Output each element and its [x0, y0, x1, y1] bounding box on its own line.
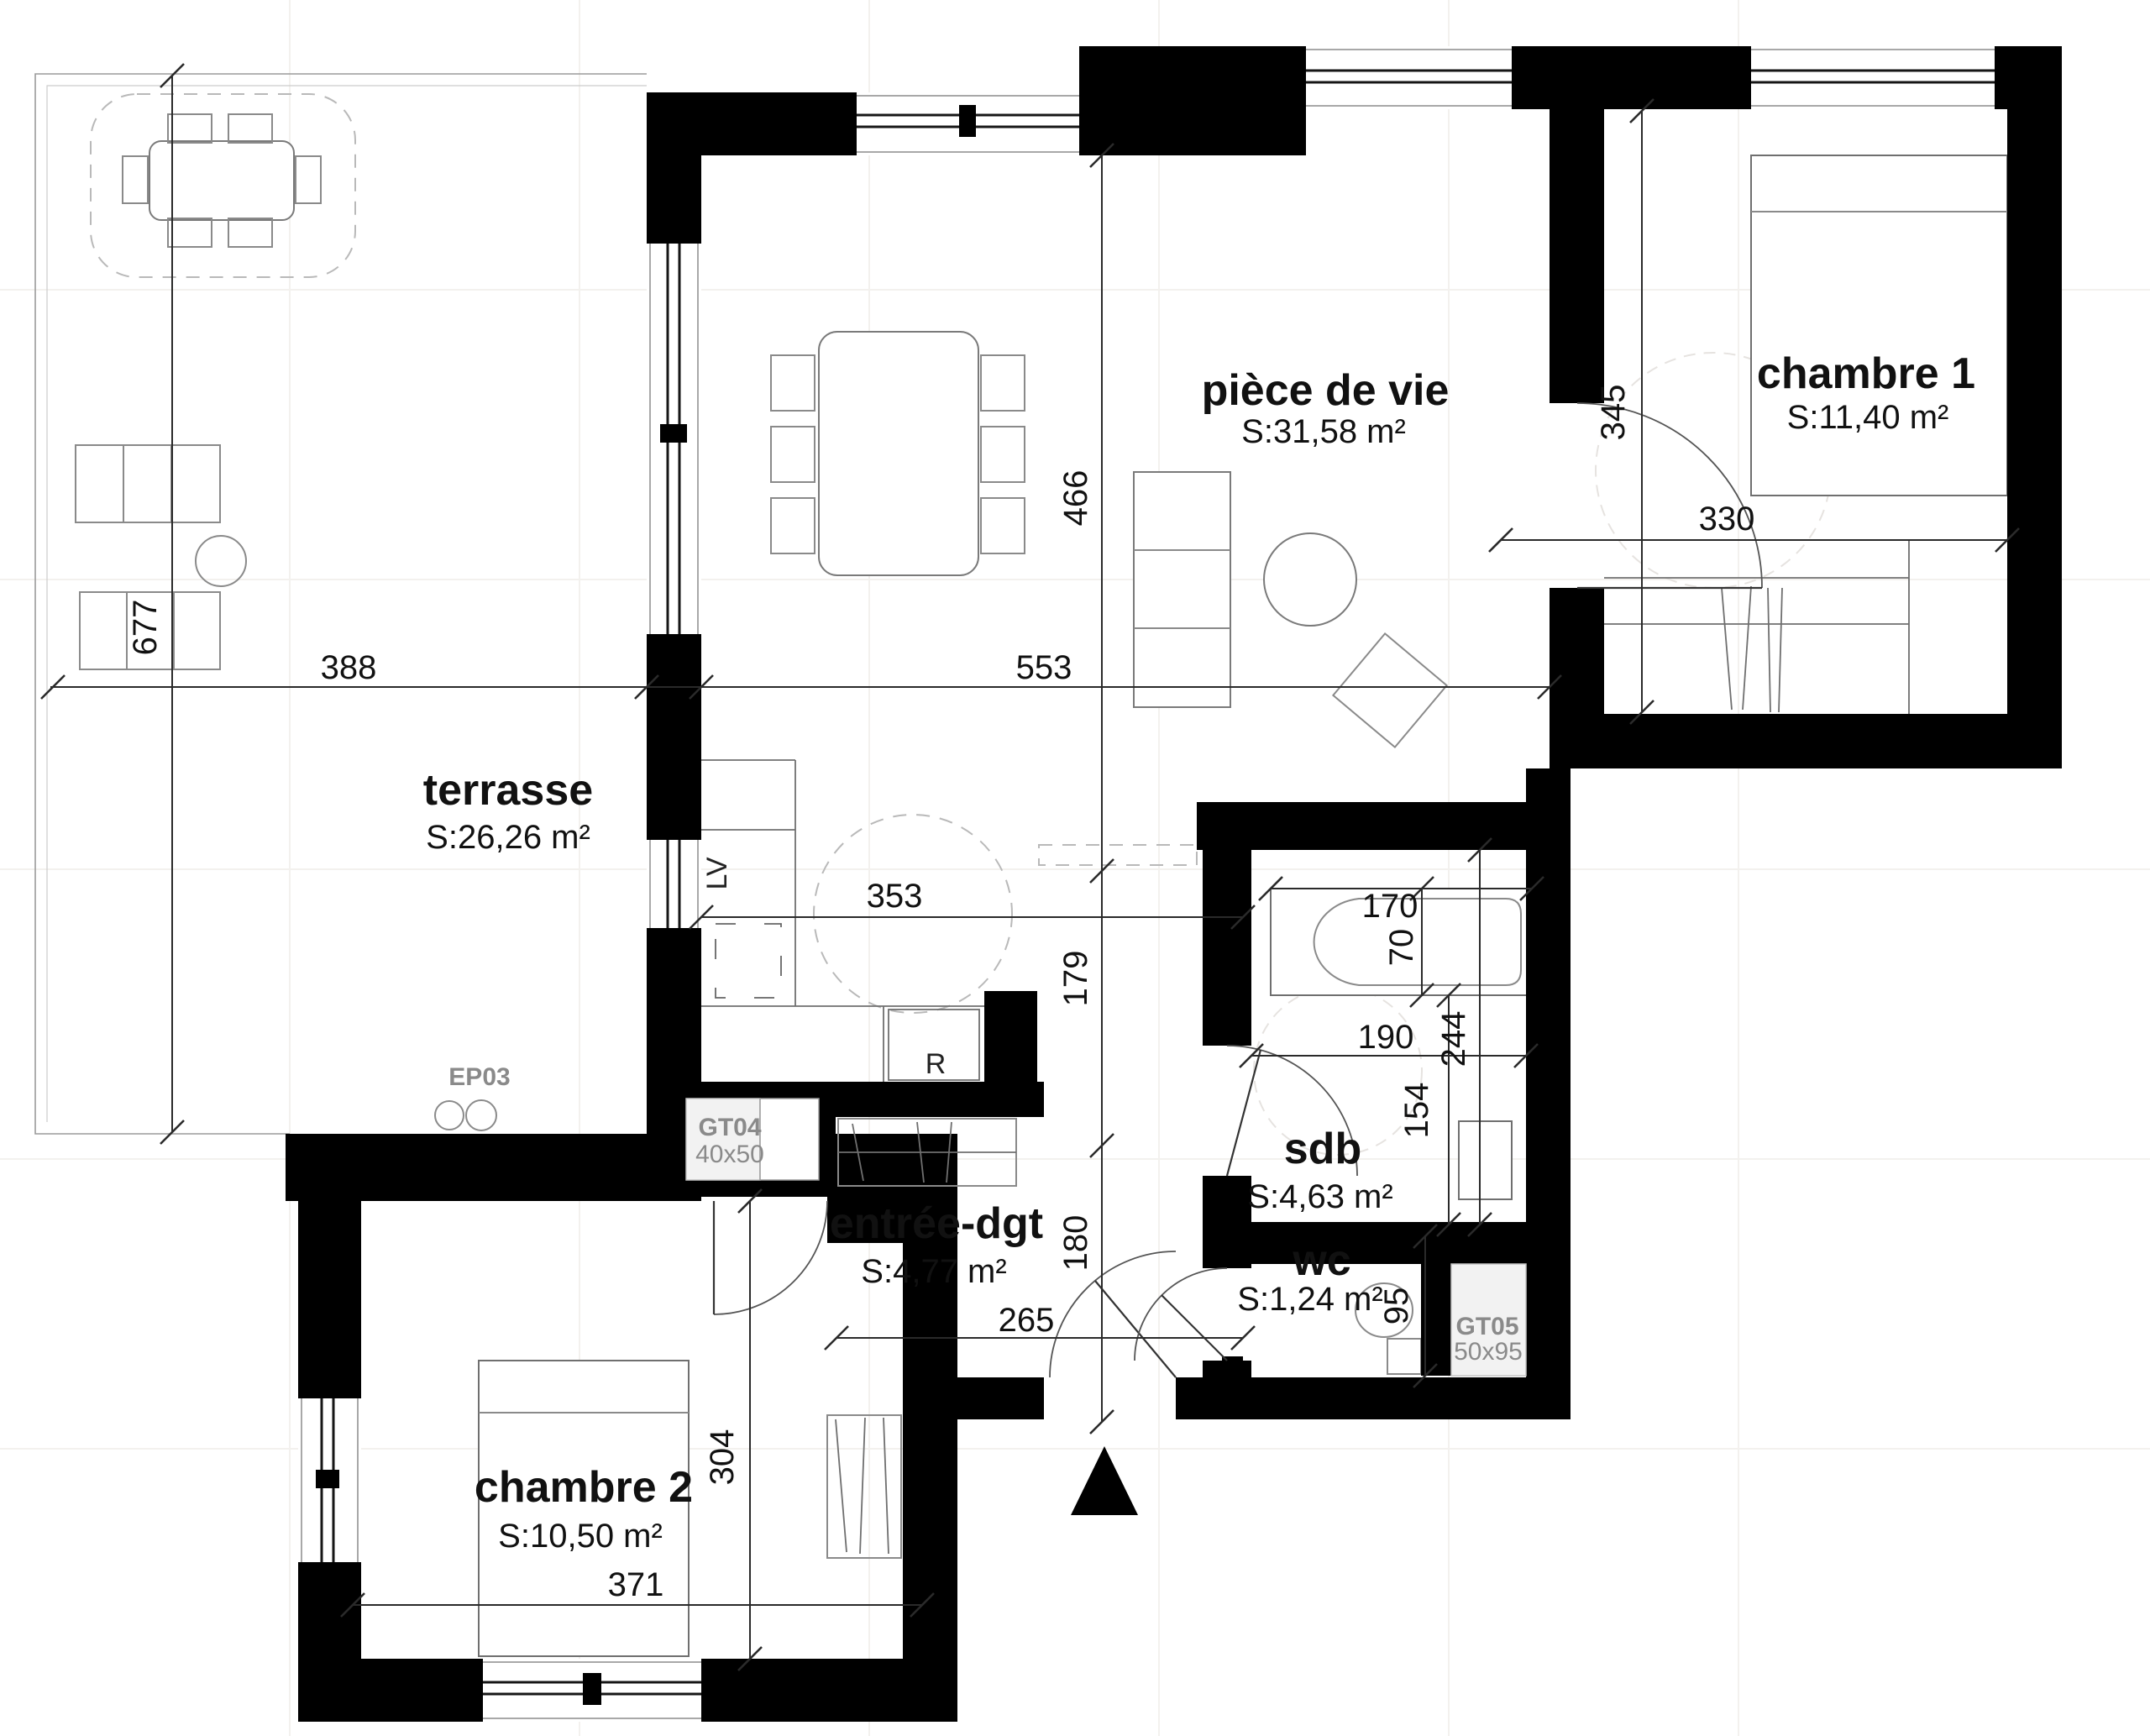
room-name-entree: entrée-dgt: [830, 1199, 1043, 1248]
room-name-chambre2: chambre 2: [475, 1463, 693, 1512]
dim-living-height: 466: [1057, 470, 1094, 527]
gt04-white-cell: [760, 1099, 819, 1180]
room-area-entree: S:4,77 m²: [861, 1253, 1006, 1290]
armchair: [1333, 633, 1446, 747]
room-name-wc: wc: [1292, 1236, 1350, 1285]
wardrobe-chambre1: [1604, 540, 1909, 714]
window-chambre2-west: [298, 1398, 361, 1562]
ep03-label: EP03: [448, 1063, 510, 1091]
door-wc: [1135, 1268, 1227, 1361]
dining-table: [819, 332, 978, 575]
entrance-arrow: [1071, 1446, 1138, 1515]
sun-lounger: [76, 445, 220, 522]
closet-chambre2: [827, 1415, 901, 1558]
sofa: [1134, 472, 1230, 707]
outdoor-chair: [123, 156, 148, 203]
room-area-terrasse: S:26,26 m²: [426, 819, 590, 856]
door-chambre2: [714, 1201, 827, 1314]
kitchen: [701, 760, 1012, 1083]
window-kitchen-west: [647, 840, 701, 928]
dim-chambre2-width: 371: [608, 1566, 664, 1603]
ep03-drain: [435, 1101, 464, 1130]
toilet-tank: [1387, 1339, 1421, 1374]
dim-bath-width: 70: [1383, 929, 1420, 967]
dim-kitchen-width: 353: [867, 878, 923, 915]
gt04-size-label: 40x50: [695, 1141, 764, 1168]
dim-bath-length: 170: [1362, 888, 1418, 925]
room-name-terrasse: terrasse: [423, 766, 593, 815]
dining-chair: [981, 355, 1025, 411]
outdoor-chair: [168, 218, 212, 247]
outdoor-chair: [228, 218, 272, 247]
outdoor-chair: [168, 114, 212, 143]
coffee-table: [1264, 533, 1356, 626]
dim-entree-width: 265: [999, 1302, 1055, 1339]
floor-plan-page: 388 553 677 466 179 180 345 330 353 265 …: [0, 0, 2150, 1736]
outdoor-chair: [296, 156, 321, 203]
future-element-dashed: [1039, 845, 1197, 865]
dining-chair: [981, 427, 1025, 482]
dim-living-width: 553: [1016, 649, 1072, 686]
dishwasher-label: LV: [701, 857, 733, 889]
dining-chair: [981, 498, 1025, 553]
dim-terrasse-height: 677: [127, 600, 164, 656]
room-area-sdb: S:4,63 m²: [1247, 1178, 1392, 1215]
dining-chair: [771, 427, 815, 482]
room-area-piece-de-vie: S:31,58 m²: [1241, 413, 1406, 450]
dim-sdb-height: 244: [1435, 1011, 1472, 1067]
window-chambre2-south: [483, 1659, 701, 1722]
dim-chambre2-height: 304: [704, 1429, 741, 1486]
window-chambre1-top: [1751, 46, 1995, 109]
window-living-top-right: [1306, 46, 1512, 109]
dim-terrasse-width: 388: [321, 649, 377, 686]
dim-sdb-right-height: 154: [1398, 1083, 1435, 1139]
window-living-west: [647, 244, 701, 634]
room-area-chambre2: S:10,50 m²: [498, 1518, 663, 1555]
dim-chambre1-height: 345: [1595, 385, 1632, 441]
dim-chambre1-width: 330: [1699, 501, 1755, 538]
cooktop: [716, 924, 781, 998]
room-name-sdb: sdb: [1284, 1125, 1361, 1173]
gt04-label: GT04: [698, 1114, 761, 1141]
room-area-wc: S:1,24 m²: [1237, 1281, 1382, 1318]
ep03-drain: [466, 1100, 496, 1130]
dim-entree-height: 180: [1057, 1215, 1094, 1272]
window-living-top: [857, 92, 1079, 155]
gt05-size-label: 50x95: [1454, 1338, 1523, 1366]
dim-sdb-width: 190: [1358, 1019, 1414, 1056]
gt05-label: GT05: [1455, 1313, 1518, 1340]
outdoor-chair: [228, 114, 272, 143]
outdoor-table: [149, 141, 294, 220]
room-name-piece-de-vie: pièce de vie: [1202, 366, 1450, 415]
dim-passage-height: 179: [1057, 951, 1094, 1007]
room-area-chambre1: S:11,40 m²: [1787, 399, 1949, 436]
fridge-label: R: [926, 1048, 947, 1080]
dining-chair: [771, 355, 815, 411]
bed-chambre1: [1751, 155, 2007, 496]
washbasin: [1459, 1121, 1512, 1199]
floor-plan-drawing: 388 553 677 466 179 180 345 330 353 265 …: [0, 0, 2150, 1736]
room-name-chambre1: chambre 1: [1757, 349, 1975, 398]
dining-chair: [771, 498, 815, 553]
dim-wc-height: 95: [1378, 1288, 1415, 1325]
